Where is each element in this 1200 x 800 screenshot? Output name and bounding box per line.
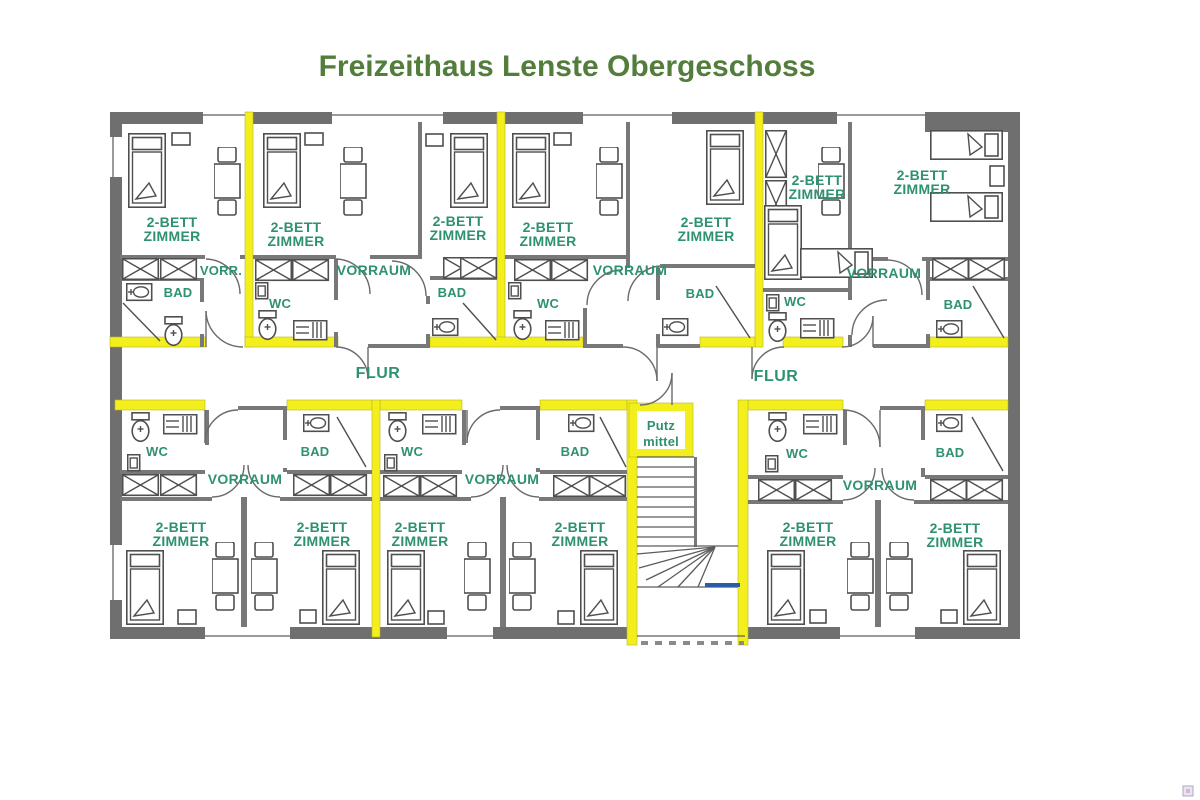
sink-icon xyxy=(569,415,594,432)
room-label: ZIMMER xyxy=(893,181,950,197)
wardrobe-icon xyxy=(766,131,787,178)
shelf-icon xyxy=(426,134,443,146)
bed-icon xyxy=(513,134,549,207)
room-label: ZIMMER xyxy=(391,533,448,549)
toilet-icon xyxy=(132,413,149,442)
nightstand-icon xyxy=(990,166,1004,186)
small-sink-icon xyxy=(385,455,397,471)
bed-icon xyxy=(931,193,1002,221)
table-chairs-icon xyxy=(509,542,535,610)
radiator-icon xyxy=(164,415,197,434)
nightstand-icon xyxy=(941,610,957,623)
table-chairs-icon xyxy=(340,147,366,215)
nightstand-icon xyxy=(428,611,444,624)
room-label: Putz xyxy=(647,418,676,433)
table-chairs-icon xyxy=(886,542,912,610)
bed-icon xyxy=(127,551,163,624)
bed-icon xyxy=(388,551,424,624)
shelf-icon xyxy=(305,133,323,145)
room-label: WC xyxy=(786,446,808,461)
radiator-icon xyxy=(804,415,837,434)
table-chairs-icon xyxy=(464,542,490,610)
table-chairs-icon xyxy=(596,147,622,215)
room-label: VORRAUM xyxy=(208,471,282,487)
shelf-icon xyxy=(554,133,571,145)
stair-landing xyxy=(630,590,745,640)
bed-icon xyxy=(264,134,300,207)
radiator-icon xyxy=(423,415,456,434)
sink-icon xyxy=(937,415,962,432)
room-label: WC xyxy=(784,294,806,309)
small-sink-icon xyxy=(256,283,268,299)
sink-icon xyxy=(304,415,329,432)
room-label: BAD xyxy=(936,445,965,460)
corridor-label: FLUR xyxy=(356,365,401,382)
room-label: ZIMMER xyxy=(788,186,845,202)
radiator-icon xyxy=(546,321,579,340)
room-label: BAD xyxy=(164,285,193,300)
table-chairs-icon xyxy=(214,147,240,215)
room-label: ZIMMER xyxy=(519,233,576,249)
toilet-icon xyxy=(165,317,182,346)
bed-icon xyxy=(451,134,487,207)
room-label: ZIMMER xyxy=(926,534,983,550)
sink-icon xyxy=(937,321,962,338)
room-label: mittel xyxy=(643,434,679,449)
nightstand-icon xyxy=(810,610,826,623)
bed-icon xyxy=(707,131,743,204)
room-label: ZIMMER xyxy=(429,227,486,243)
radiator-icon xyxy=(801,319,834,338)
bed-icon xyxy=(964,551,1000,624)
room-label: VORRAUM xyxy=(847,265,921,281)
toilet-icon xyxy=(769,413,786,442)
floor-plan-canvas: Freizeithaus Lenste Obergeschoss xyxy=(0,0,1200,800)
page-title: Freizeithaus Lenste Obergeschoss xyxy=(319,50,816,83)
nightstand-icon xyxy=(178,610,196,624)
room-label: BAD xyxy=(301,444,330,459)
toilet-icon xyxy=(259,311,276,340)
sink-icon xyxy=(127,284,152,301)
table-chairs-icon xyxy=(212,542,238,610)
room-label: WC xyxy=(401,444,423,459)
room-label: BAD xyxy=(561,444,590,459)
radiator-icon xyxy=(294,321,327,340)
nightstand-icon xyxy=(558,611,574,624)
broken-image-icon xyxy=(1183,786,1193,796)
bed-icon xyxy=(323,551,359,624)
room-label: BAD xyxy=(686,286,715,301)
room-label: ZIMMER xyxy=(677,228,734,244)
room-label: WC xyxy=(146,444,168,459)
room-label: WC xyxy=(269,296,291,311)
small-sink-icon xyxy=(509,283,521,299)
room-label: VORRAUM xyxy=(337,262,411,278)
room-label: ZIMMER xyxy=(779,533,836,549)
room-label: VORRAUM xyxy=(593,262,667,278)
bed-icon xyxy=(931,131,1002,159)
room-label: VORR. xyxy=(200,263,242,278)
corridor-label: FLUR xyxy=(754,368,799,385)
room-label: BAD xyxy=(944,297,973,312)
small-sink-icon xyxy=(767,295,779,311)
room-label: VORRAUM xyxy=(843,477,917,493)
small-sink-icon xyxy=(766,456,778,472)
bed-icon xyxy=(765,206,801,279)
toilet-icon xyxy=(769,313,786,342)
room-label: VORRAUM xyxy=(465,471,539,487)
sink-icon xyxy=(433,319,458,336)
bed-icon xyxy=(581,551,617,624)
toilet-icon xyxy=(514,311,531,340)
room-label: ZIMMER xyxy=(152,533,209,549)
sink-icon xyxy=(663,319,688,336)
small-sink-icon xyxy=(128,455,140,471)
nightstand-icon xyxy=(300,610,316,623)
shelf-icon xyxy=(172,133,190,145)
toilet-icon xyxy=(389,413,406,442)
room-label: ZIMMER xyxy=(551,533,608,549)
room-label: WC xyxy=(537,296,559,311)
room-label: ZIMMER xyxy=(293,533,350,549)
room-label: ZIMMER xyxy=(143,228,200,244)
floor-plan-page: Freizeithaus Lenste Obergeschoss xyxy=(0,0,1200,800)
room-label: ZIMMER xyxy=(267,233,324,249)
room-label: BAD xyxy=(438,285,467,300)
bed-icon xyxy=(129,134,165,207)
table-chairs-icon xyxy=(251,542,277,610)
bed-icon xyxy=(768,551,804,624)
table-chairs-icon xyxy=(847,542,873,610)
